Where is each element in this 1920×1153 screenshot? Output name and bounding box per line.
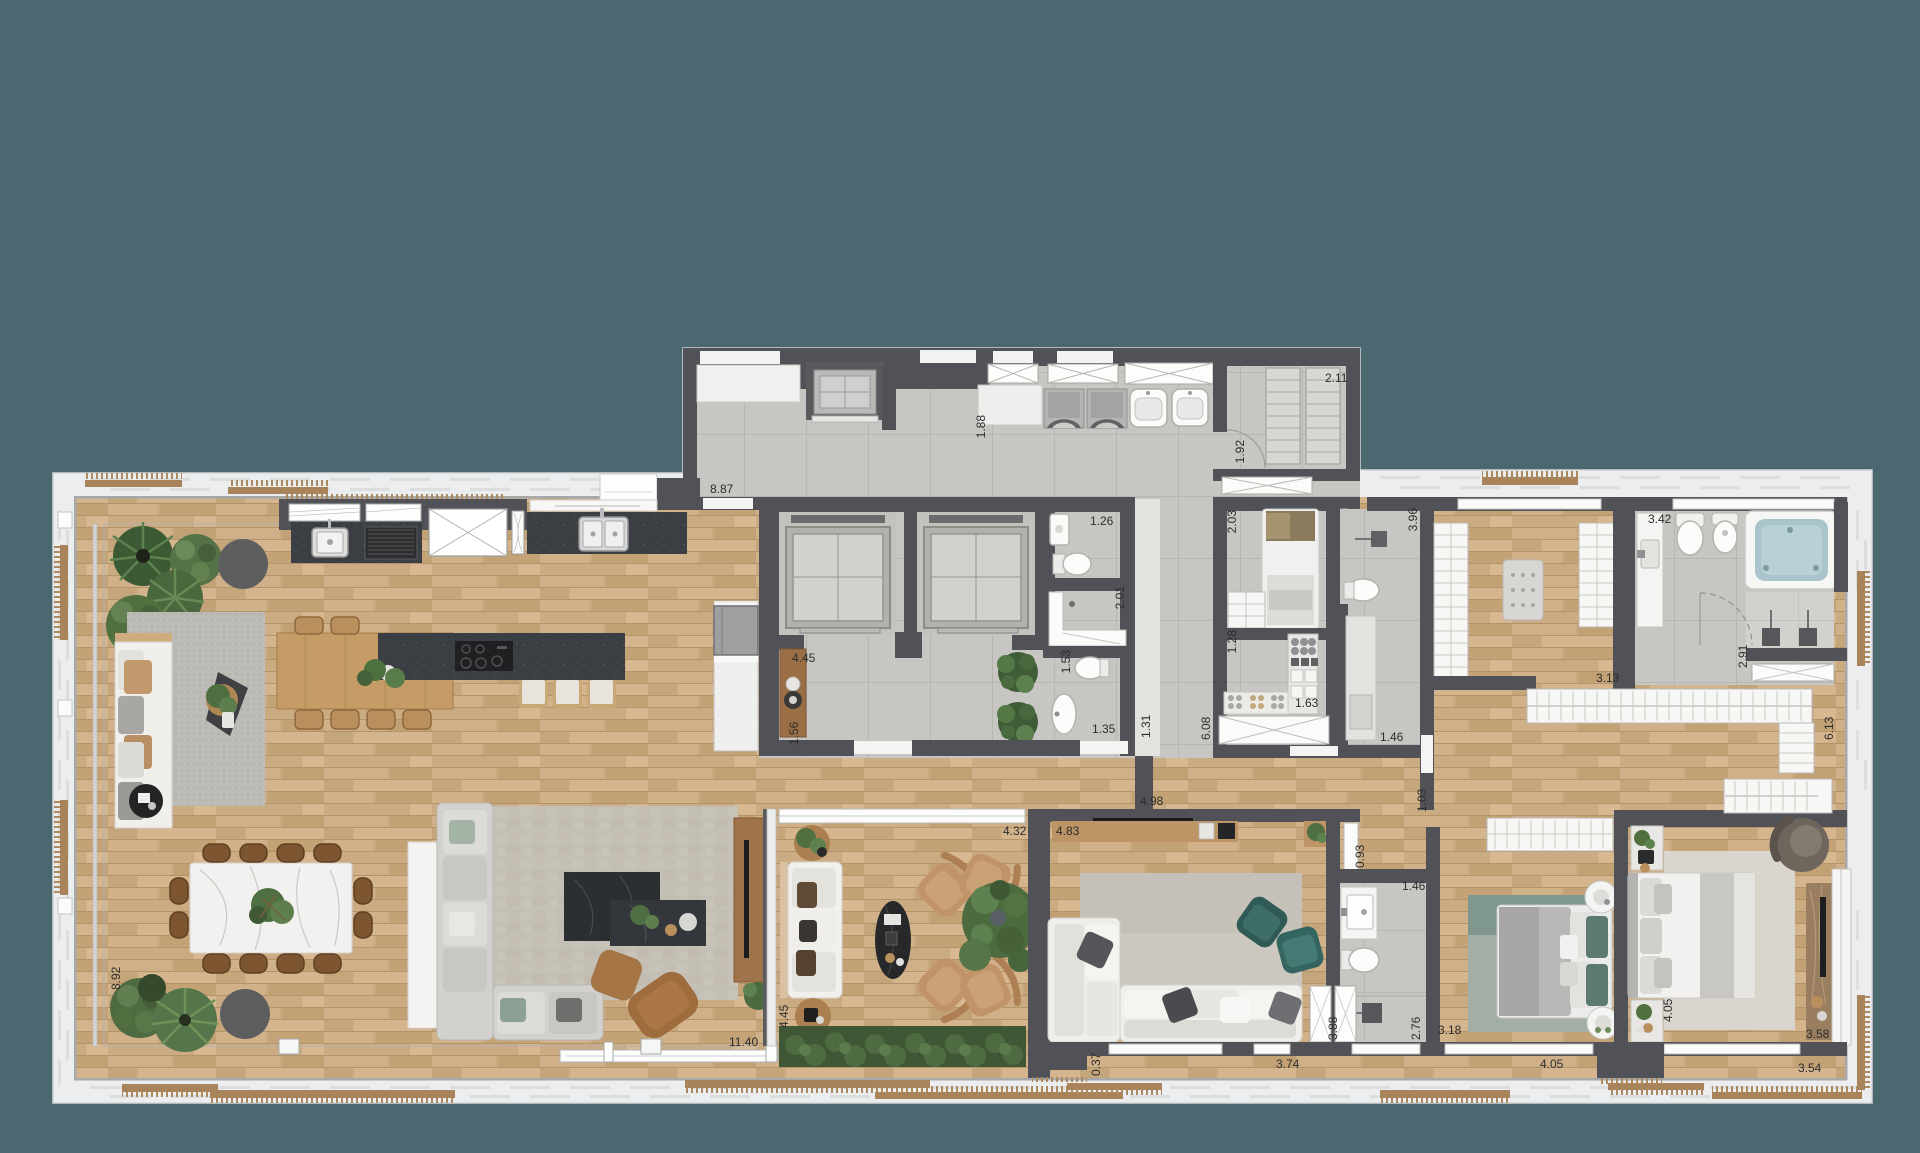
- svg-text:2.91: 2.91: [1736, 644, 1750, 668]
- svg-text:1.03: 1.03: [1415, 788, 1429, 812]
- svg-text:1.88: 1.88: [974, 415, 988, 439]
- svg-text:1.26: 1.26: [1090, 514, 1114, 528]
- svg-text:0.93: 0.93: [1353, 844, 1367, 868]
- svg-text:3.42: 3.42: [1648, 512, 1672, 526]
- svg-text:8.87: 8.87: [710, 482, 734, 496]
- svg-text:4.45: 4.45: [792, 651, 816, 665]
- svg-text:0.37: 0.37: [1089, 1052, 1103, 1076]
- svg-text:1.31: 1.31: [1139, 714, 1153, 738]
- svg-text:2.11: 2.11: [1325, 371, 1348, 385]
- svg-text:1.92: 1.92: [1233, 440, 1247, 464]
- svg-text:1.63: 1.63: [1295, 696, 1319, 710]
- svg-text:11.40: 11.40: [729, 1035, 758, 1049]
- svg-text:3.18: 3.18: [1438, 1023, 1462, 1037]
- svg-text:2.01: 2.01: [1113, 586, 1127, 610]
- svg-text:4.98: 4.98: [1140, 794, 1164, 808]
- svg-text:1.53: 1.53: [1059, 650, 1073, 674]
- svg-text:1.46: 1.46: [1380, 730, 1404, 744]
- svg-text:4.32: 4.32: [1003, 824, 1027, 838]
- svg-text:4.83: 4.83: [1056, 824, 1080, 838]
- svg-text:1.56: 1.56: [787, 721, 801, 745]
- svg-text:1.46: 1.46: [1402, 879, 1426, 893]
- svg-text:3.96: 3.96: [1406, 508, 1420, 532]
- svg-text:3.54: 3.54: [1798, 1061, 1822, 1075]
- svg-text:3.74: 3.74: [1276, 1057, 1300, 1071]
- svg-text:4.05: 4.05: [1661, 998, 1675, 1022]
- svg-text:2.03: 2.03: [1225, 510, 1239, 534]
- svg-text:2.76: 2.76: [1409, 1016, 1423, 1040]
- svg-text:3.58: 3.58: [1806, 1027, 1830, 1041]
- svg-text:1.28: 1.28: [1225, 630, 1239, 654]
- svg-text:4.05: 4.05: [1540, 1057, 1564, 1071]
- svg-text:6.13: 6.13: [1822, 716, 1836, 740]
- svg-text:3.13: 3.13: [1596, 671, 1620, 685]
- svg-text:4.45: 4.45: [777, 1004, 791, 1028]
- svg-text:8.92: 8.92: [109, 966, 123, 990]
- svg-text:1.35: 1.35: [1092, 722, 1116, 736]
- svg-text:3.88: 3.88: [1326, 1016, 1340, 1040]
- svg-text:6.08: 6.08: [1199, 716, 1213, 740]
